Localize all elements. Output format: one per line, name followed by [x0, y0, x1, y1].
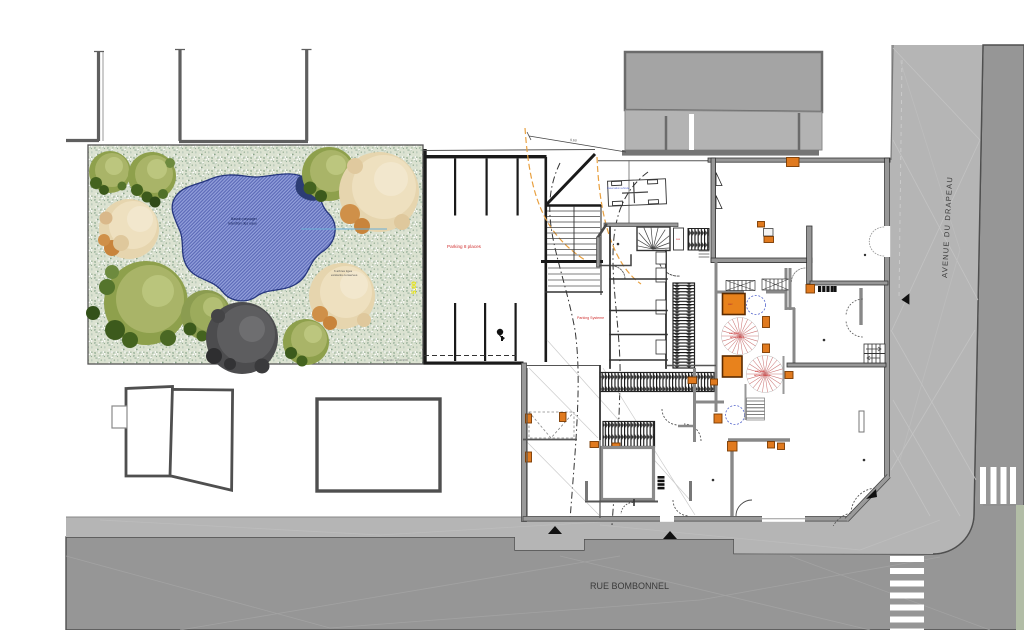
svg-text:Reservation vehicule: Reservation vehicule	[607, 187, 630, 190]
svg-text:acces caves: acces caves	[754, 373, 771, 377]
svg-text:Parking 8 places: Parking 8 places	[447, 244, 482, 249]
svg-text:5.00: 5.00	[411, 281, 418, 294]
svg-text:retention des eaux: retention des eaux	[228, 222, 257, 226]
svg-text:RUE BOMBONNEL: RUE BOMBONNEL	[590, 581, 669, 591]
svg-text:plan du jardin ech 1/200: plan du jardin ech 1/200	[376, 358, 408, 362]
svg-text:sas: sas	[676, 238, 681, 241]
svg-text:9.60: 9.60	[570, 138, 577, 143]
svg-text:Parking Systeme: Parking Systeme	[577, 316, 604, 320]
svg-text:asc: asc	[728, 302, 733, 306]
svg-text:existants conserves: existants conserves	[331, 273, 358, 277]
svg-text:acces R+1: acces R+1	[730, 335, 745, 339]
svg-text:Bassin paysager: Bassin paysager	[231, 217, 258, 221]
